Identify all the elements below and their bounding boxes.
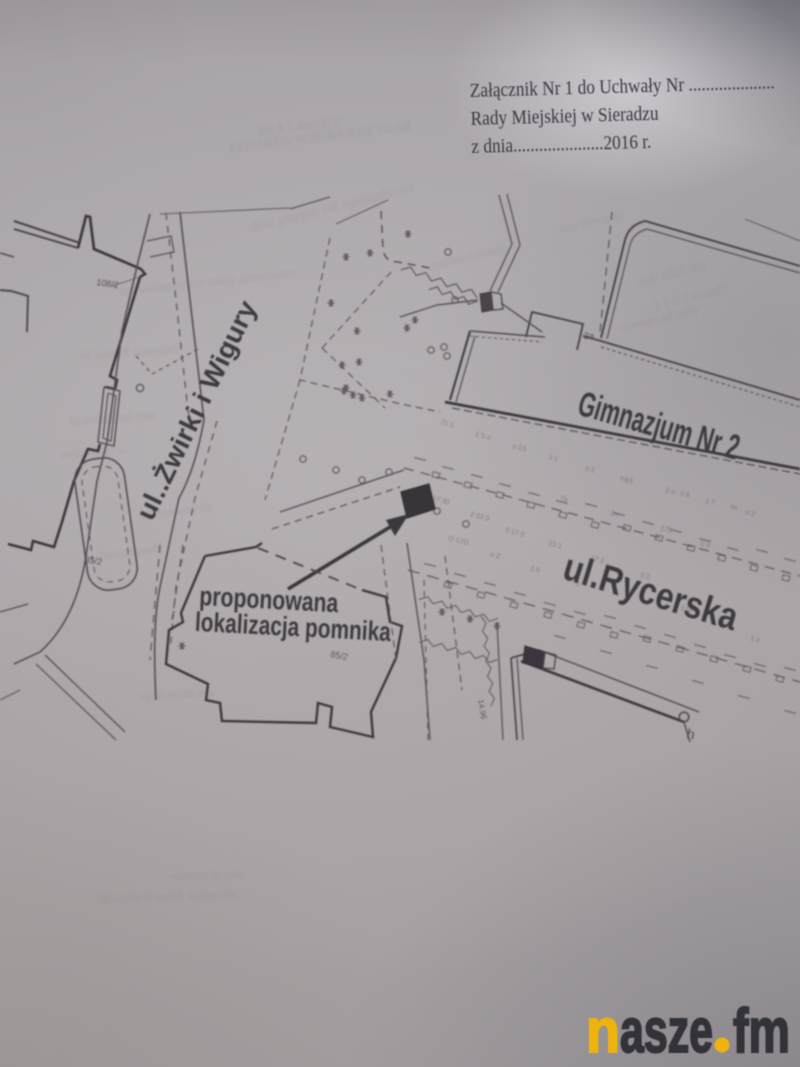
svg-text:ains ebvog an: ains ebvog an bbox=[558, 207, 625, 235]
svg-text:o 1: o 1 bbox=[585, 465, 596, 474]
svg-text:me. 1021 iop: me. 1021 iop bbox=[637, 257, 707, 288]
svg-text:o 2: o 2 bbox=[745, 509, 756, 518]
svg-text:175: 175 bbox=[659, 525, 672, 535]
svg-text:s 6: s 6 bbox=[679, 490, 690, 499]
svg-text:W sonulP iemeimS: W sonulP iemeimS bbox=[79, 341, 179, 363]
svg-text:1 7: 1 7 bbox=[705, 498, 716, 507]
svg-text:7s: 7s bbox=[559, 495, 568, 504]
svg-text:Rady Miejskiej w Sieradzu: Rady Miejskiej w Sieradzu bbox=[470, 103, 659, 130]
svg-text:1 0: 1 0 bbox=[529, 565, 540, 574]
svg-text:wztsnap hcynzc: wztsnap hcynzc bbox=[170, 866, 247, 883]
svg-text:0 17 0: 0 17 0 bbox=[504, 527, 525, 539]
svg-text:ul.Rycerska: ul.Rycerska bbox=[558, 546, 743, 639]
svg-text:75 1: 75 1 bbox=[440, 419, 455, 429]
svg-text:z dnia.....................201: z dnia.....................2016 r. bbox=[471, 131, 652, 158]
svg-text:3 1: 3 1 bbox=[548, 454, 559, 463]
svg-text:o 23: o 23 bbox=[512, 443, 527, 453]
svg-text:85/2: 85/2 bbox=[330, 649, 349, 662]
svg-text:3a: 3a bbox=[584, 331, 594, 341]
svg-text:Załącznik Nr 1 do Uchwały Nr .: Załącznik Nr 1 do Uchwały Nr ...........… bbox=[470, 71, 775, 102]
svg-text:ikswohcO nodA walsezrW: ikswohcO nodA walsezrW bbox=[100, 886, 241, 906]
svg-text:melaizdops w: melaizdops w bbox=[59, 442, 126, 461]
svg-text:14.96: 14.96 bbox=[476, 699, 488, 721]
svg-text:2n: 2n bbox=[609, 510, 618, 519]
svg-text:ogeiksjeiM yda: ogeiksjeiM yda bbox=[139, 685, 215, 703]
svg-text:n: n bbox=[586, 997, 620, 1066]
svg-text:Gimnazjum Nr 2: Gimnazjum Nr 2 bbox=[574, 384, 744, 467]
svg-text:0 3: 0 3 bbox=[699, 540, 710, 549]
svg-text:imatinu z einadz: imatinu z einadz bbox=[427, 240, 507, 273]
svg-text:108/2: 108/2 bbox=[96, 277, 120, 290]
svg-text:asze: asze bbox=[620, 997, 713, 1066]
svg-text:o 2: o 2 bbox=[489, 551, 500, 560]
svg-text:slriw ydorpan inZ ogelaimhcezr: slriw ydorpan inZ ogelaimhcezrt bbox=[247, 179, 416, 235]
svg-text:1 s: 1 s bbox=[749, 635, 760, 644]
svg-text:15: 15 bbox=[625, 477, 634, 486]
svg-text:ogewoimnorhco unalp ainezcanzo: ogewoimnorhco unalp ainezcanzo bbox=[119, 265, 297, 298]
svg-text:23 1: 23 1 bbox=[547, 540, 562, 550]
svg-text:2 53 0: 2 53 0 bbox=[469, 511, 490, 523]
svg-text:fm: fm bbox=[733, 997, 790, 1066]
svg-text:lokalizacja pomnika: lokalizacja pomnika bbox=[194, 607, 392, 647]
svg-text:ss: ss bbox=[729, 503, 738, 512]
svg-text:O 17O: O 17O bbox=[447, 535, 469, 547]
svg-text:1 5 o: 1 5 o bbox=[475, 431, 492, 442]
svg-text:ikswonamoR: ikswonamoR bbox=[98, 540, 163, 563]
svg-text:2 o: 2 o bbox=[665, 487, 676, 496]
